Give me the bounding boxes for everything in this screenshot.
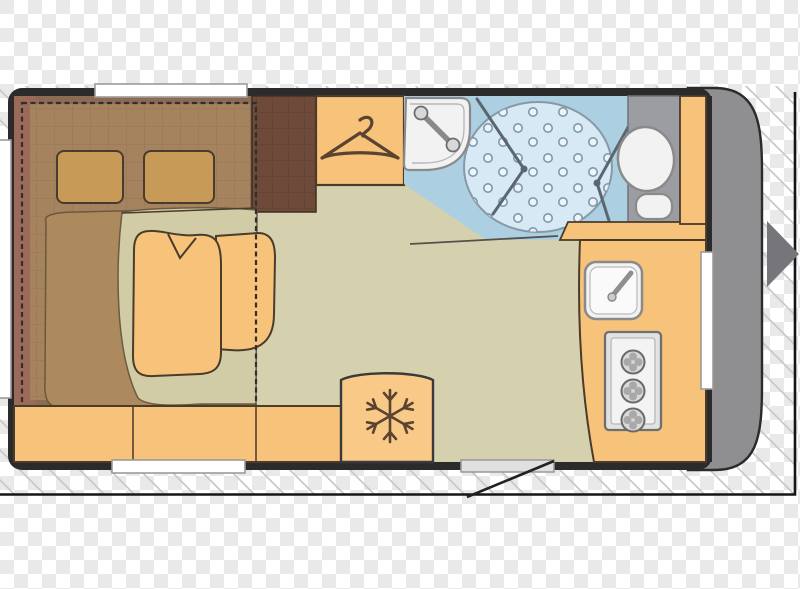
window-top xyxy=(95,84,247,97)
bench-seat xyxy=(14,406,344,462)
toilet-foot xyxy=(636,194,672,219)
window-right xyxy=(701,252,713,389)
kitchen xyxy=(579,240,706,462)
side-seat xyxy=(216,233,275,350)
shower-dots xyxy=(464,102,612,232)
pillow-left xyxy=(57,151,123,203)
basin-tap-knob-1 xyxy=(415,107,428,120)
door-hinge-right xyxy=(594,180,601,187)
floorplan-image xyxy=(0,0,800,589)
wardrobe xyxy=(316,96,404,185)
caravan-floorplan xyxy=(0,0,800,589)
stove-burners xyxy=(622,351,645,432)
pillow-right xyxy=(144,151,214,203)
bathroom-side-column xyxy=(680,96,706,224)
caravan xyxy=(0,84,762,497)
burner-1 xyxy=(622,351,645,374)
sink-drain xyxy=(608,293,616,301)
burner-3 xyxy=(622,409,645,432)
cabinet-tiles xyxy=(252,96,316,212)
door-hinge-left xyxy=(521,166,528,173)
burner-2 xyxy=(622,380,645,403)
window-left xyxy=(0,140,11,398)
window-bottom xyxy=(112,460,245,473)
basin-tap-knob-2 xyxy=(447,139,460,152)
